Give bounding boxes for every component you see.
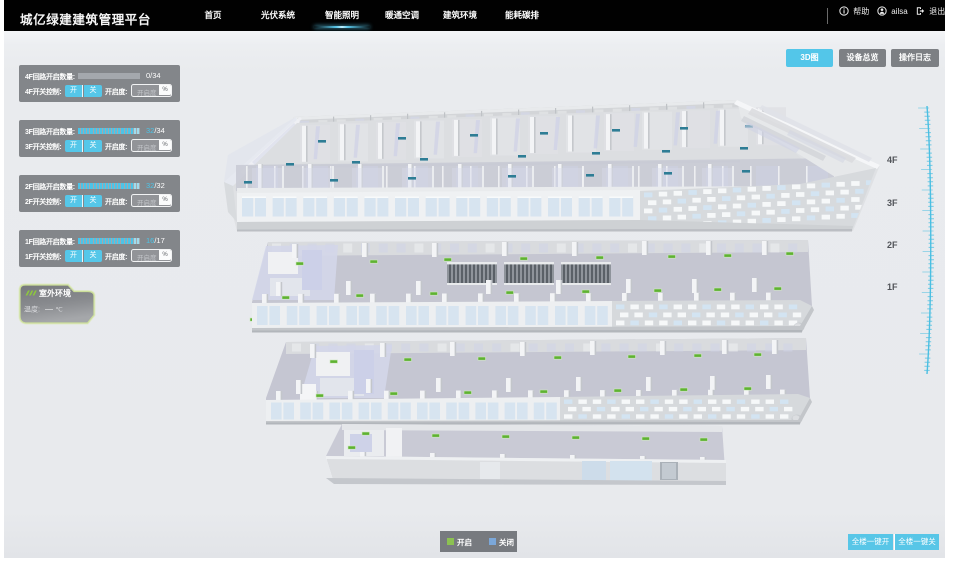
svg-text:温度:: 温度: — [24, 305, 40, 314]
svg-text:室外环境: 室外环境 — [39, 288, 71, 298]
svg-text:℃: ℃ — [56, 307, 64, 314]
svg-text:—: — — [45, 305, 53, 314]
